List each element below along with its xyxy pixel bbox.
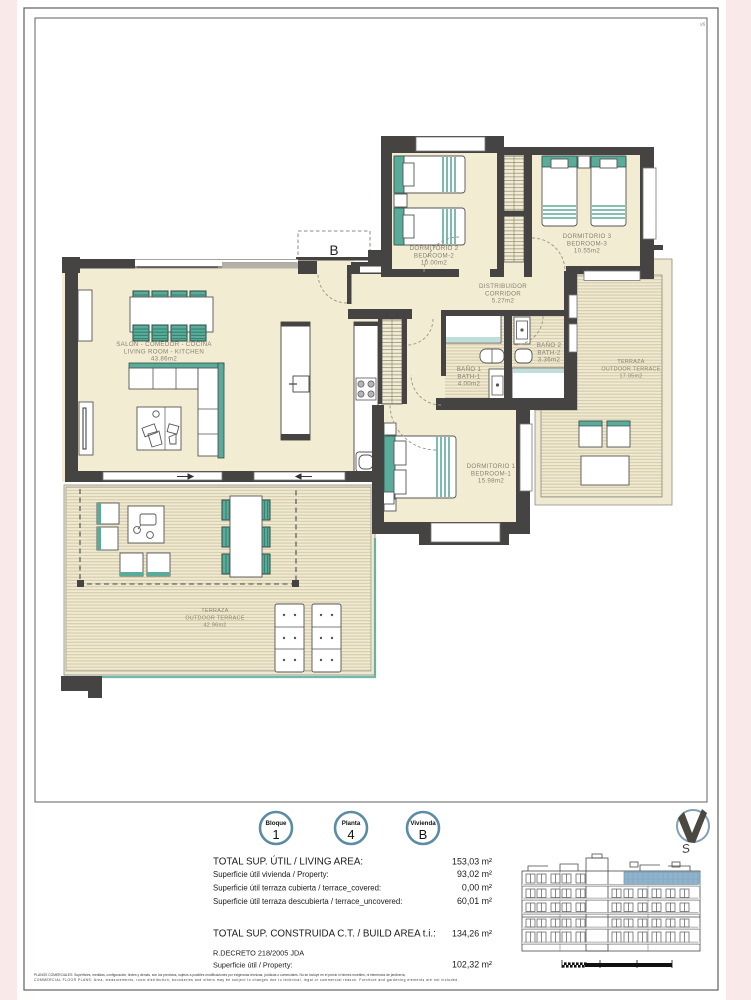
svg-text:R.DECRETO 218/2005 JDA: R.DECRETO 218/2005 JDA bbox=[213, 949, 304, 958]
svg-text:DORMITORIO 3: DORMITORIO 3 bbox=[563, 233, 612, 240]
svg-text:1: 1 bbox=[272, 827, 279, 842]
svg-text:PLANOS COMERCIALES: Superficie: PLANOS COMERCIALES: Superficies, medidas… bbox=[34, 973, 406, 977]
svg-text:B: B bbox=[419, 827, 428, 842]
svg-text:TERRAZA: TERRAZA bbox=[617, 359, 644, 365]
svg-text:BEDROOM-2: BEDROOM-2 bbox=[414, 252, 454, 259]
svg-text:COMMERCIAL FLOOR PLANS: Area,: COMMERCIAL FLOOR PLANS: Area, measuremen… bbox=[34, 978, 459, 982]
svg-text:4.00m2: 4.00m2 bbox=[458, 381, 481, 388]
svg-text:4: 4 bbox=[347, 827, 354, 842]
svg-text:CORRIDOR: CORRIDOR bbox=[485, 290, 521, 297]
svg-text:TERRAZA: TERRAZA bbox=[201, 608, 228, 614]
svg-text:102,32 m²: 102,32 m² bbox=[452, 960, 492, 970]
svg-text:BATH-1: BATH-1 bbox=[457, 373, 481, 380]
svg-text:Superficie útil terraza cubier: Superficie útil terraza cubierta / terra… bbox=[213, 884, 381, 893]
svg-text:153,03 m²: 153,03 m² bbox=[452, 857, 492, 867]
svg-text:Bloque: Bloque bbox=[266, 820, 288, 827]
svg-text:43.86m2: 43.86m2 bbox=[151, 356, 177, 363]
svg-text:Planta: Planta bbox=[342, 820, 361, 827]
svg-text:Vivienda: Vivienda bbox=[410, 820, 436, 827]
svg-text:TOTAL SUP. ÚTIL / LIVING AREA:: TOTAL SUP. ÚTIL / LIVING AREA: bbox=[213, 857, 363, 868]
svg-text:3.36m2: 3.36m2 bbox=[538, 357, 561, 364]
svg-text:BAÑO 2: BAÑO 2 bbox=[537, 342, 562, 349]
svg-text:BAÑO 1: BAÑO 1 bbox=[457, 366, 482, 373]
svg-text:93,02 m²: 93,02 m² bbox=[457, 869, 492, 879]
svg-text:42.96m2: 42.96m2 bbox=[203, 623, 226, 629]
svg-text:SALON - COMEDOR - COCINA: SALON - COMEDOR - COCINA bbox=[116, 341, 212, 348]
svg-text:60,01 m²: 60,01 m² bbox=[457, 896, 492, 906]
svg-text:B: B bbox=[329, 243, 338, 258]
svg-text:10.00m2: 10.00m2 bbox=[421, 260, 447, 267]
svg-text:DORMITORIO 1: DORMITORIO 1 bbox=[467, 463, 516, 470]
svg-text:Superficie útil terraza descub: Superficie útil terraza descubierta / te… bbox=[213, 897, 402, 906]
svg-text:Superficie útil / Property:: Superficie útil / Property: bbox=[213, 961, 293, 970]
svg-text:BEDROOM-3: BEDROOM-3 bbox=[567, 240, 607, 247]
svg-text:15.98m2: 15.98m2 bbox=[478, 478, 504, 485]
svg-text:Superficie útil vivienda / Pro: Superficie útil vivienda / Property: bbox=[213, 870, 329, 879]
svg-text:0,00 m²: 0,00 m² bbox=[462, 883, 492, 893]
svg-text:DORMITORIO 2: DORMITORIO 2 bbox=[410, 245, 459, 252]
svg-text:DISTRIBUIDOR: DISTRIBUIDOR bbox=[479, 283, 527, 290]
svg-text:17.05m2: 17.05m2 bbox=[619, 374, 642, 380]
svg-text:v6: v6 bbox=[700, 22, 706, 28]
svg-text:134,26 m²: 134,26 m² bbox=[452, 929, 492, 939]
svg-text:OUTDOOR TERRACE: OUTDOOR TERRACE bbox=[185, 615, 244, 621]
svg-text:TOTAL SUP. CONSTRUIDA C.T. / B: TOTAL SUP. CONSTRUIDA C.T. / BUILD AREA … bbox=[213, 929, 436, 940]
svg-text:10.55m2: 10.55m2 bbox=[574, 248, 600, 255]
svg-text:LIVING ROOM - KITCHEN: LIVING ROOM - KITCHEN bbox=[124, 348, 204, 355]
svg-text:BEDROOM-1: BEDROOM-1 bbox=[471, 470, 511, 477]
svg-text:5.27m2: 5.27m2 bbox=[492, 298, 515, 305]
svg-text:BATH-2: BATH-2 bbox=[537, 349, 561, 356]
svg-text:OUTDOOR TERRACE: OUTDOOR TERRACE bbox=[601, 366, 660, 372]
